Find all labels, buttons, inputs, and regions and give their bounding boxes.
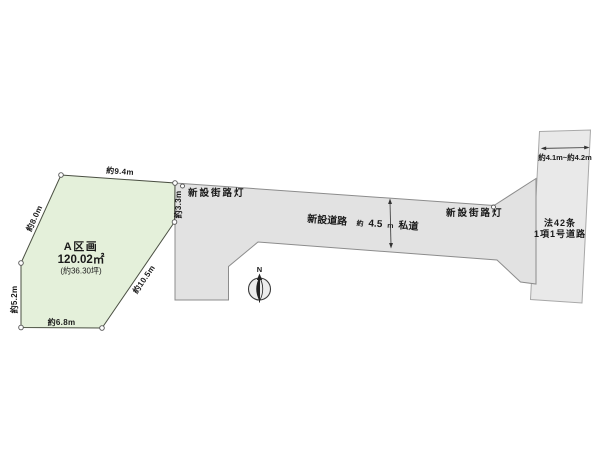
vertex-marker bbox=[173, 181, 178, 186]
vertex-marker bbox=[59, 173, 64, 178]
public-road-name-line1: 法42条 bbox=[544, 217, 576, 228]
dimension-road-front: 約3.3m bbox=[173, 191, 183, 219]
north-label: N bbox=[257, 265, 262, 274]
site-plan-drawing: A区画 120.02㎡ (約36.30坪) 約9.4m 約8.0m 約5.2m … bbox=[0, 0, 600, 450]
public-road-width-label: 約4.1m~約4.2m bbox=[538, 152, 592, 162]
vertex-marker bbox=[19, 261, 24, 266]
vertex-marker bbox=[172, 220, 177, 225]
new-road-width-value: 4.5 bbox=[368, 218, 383, 230]
street-light-icon bbox=[181, 184, 185, 188]
parcel-area-tsubo-label: (約36.30坪) bbox=[60, 266, 102, 276]
dimension-bottom: 約6.8m bbox=[48, 317, 76, 327]
dimension-lower-left: 約5.2m bbox=[9, 286, 19, 314]
street-light-icon bbox=[492, 205, 496, 209]
dimension-top: 約9.4m bbox=[106, 165, 134, 177]
parcel-name-label: A区画 bbox=[64, 240, 98, 253]
parcel-area-label: 120.02㎡ bbox=[58, 252, 105, 266]
site-plan-page: A区画 120.02㎡ (約36.30坪) 約9.4m 約8.0m 約5.2m … bbox=[0, 0, 600, 450]
street-light-left-label: 新設街路灯 bbox=[188, 187, 246, 199]
vertex-marker bbox=[19, 325, 24, 330]
public-road-name-line2: 1項1号道路 bbox=[534, 228, 586, 239]
vertex-marker bbox=[100, 326, 105, 331]
